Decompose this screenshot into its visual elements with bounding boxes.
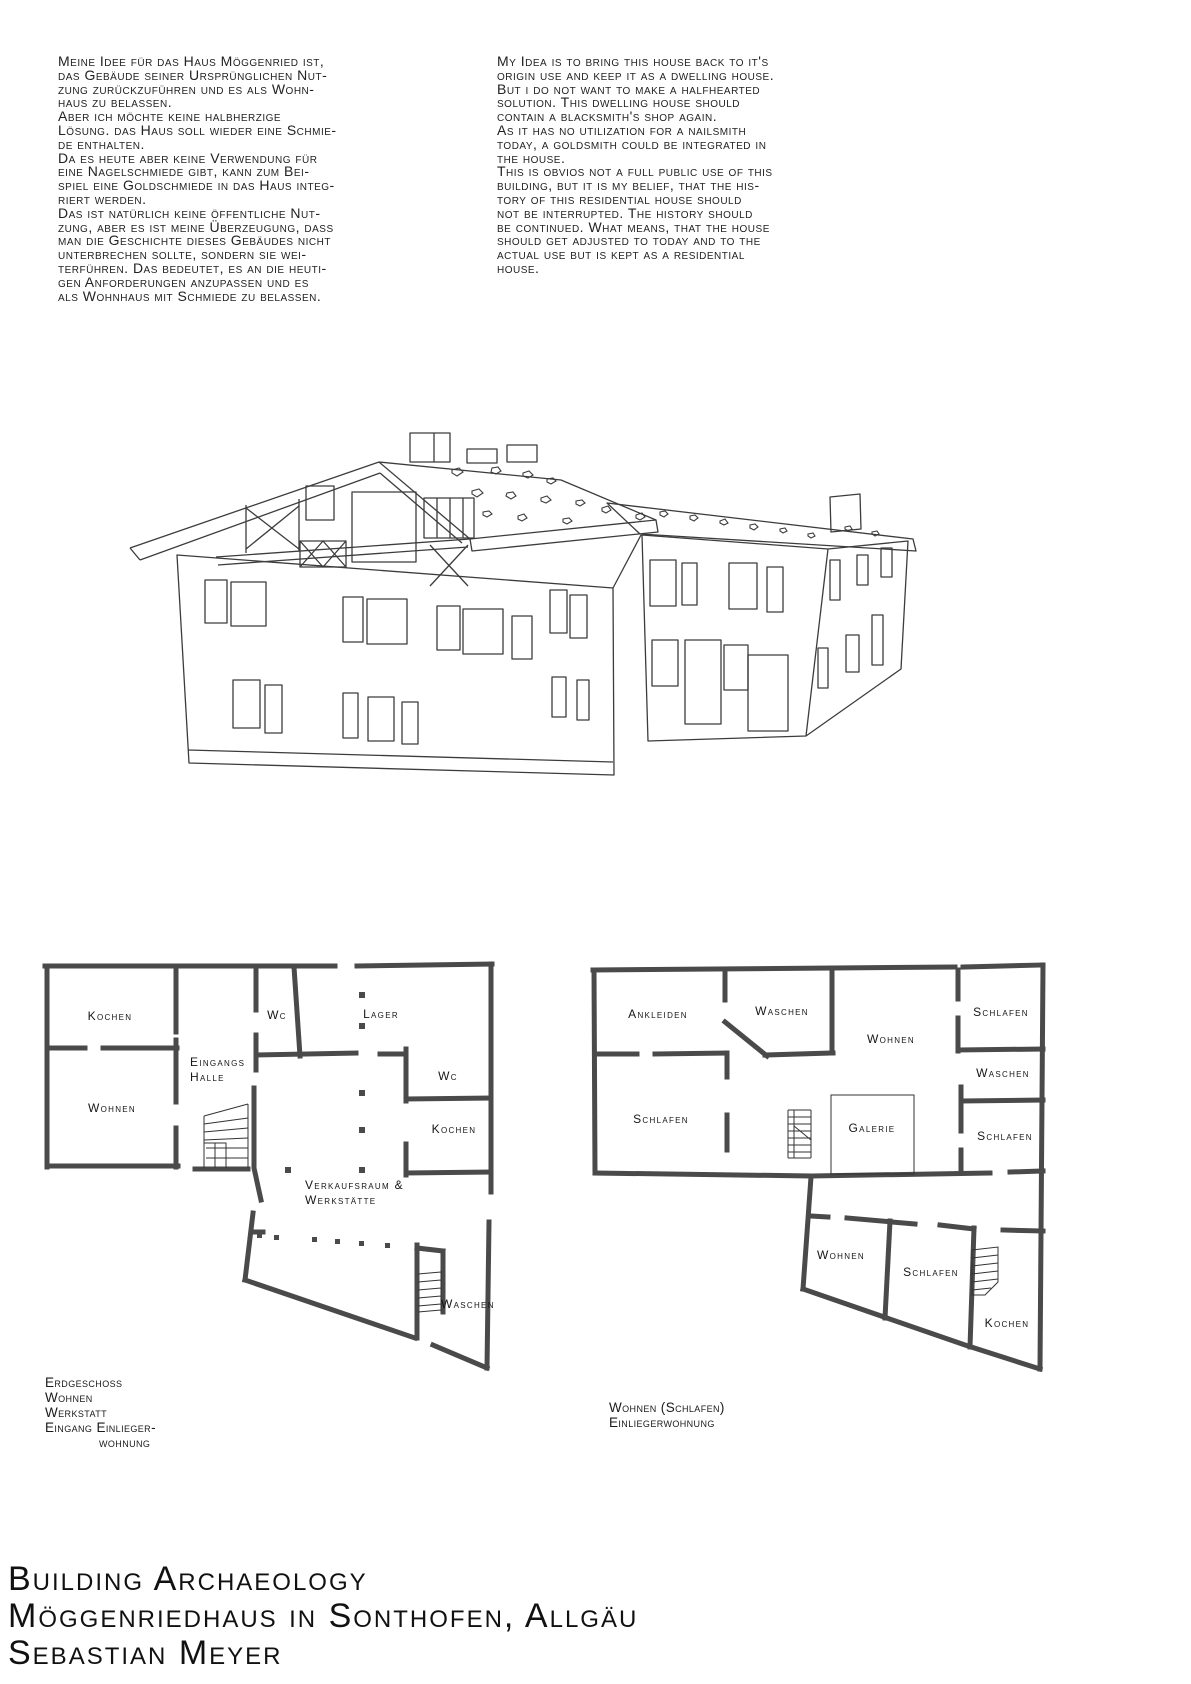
caption-left-plan: Erdgeschoss Wohnen Werkstatt Eingang Ein… (45, 1375, 156, 1450)
caption-line: wohnung (45, 1435, 156, 1450)
room-label-wohnen-upper: Wohnen (867, 1032, 915, 1046)
caption-right-plan: Wohnen (Schlafen) Einliegerwohnung (609, 1400, 725, 1430)
room-label-wohnen: Wohnen (88, 1101, 136, 1115)
room-label-waschen-right: Waschen (976, 1066, 1030, 1080)
room-label-kochen-right: Kochen (432, 1122, 477, 1136)
room-label-ankleiden: Ankleiden (628, 1007, 688, 1021)
floorplan-left-columns (257, 992, 390, 1248)
room-label-waschen-bottom: Waschen (441, 1297, 495, 1311)
room-label-wc-right: Wc (438, 1069, 458, 1083)
room-label-lager: Lager (363, 1007, 399, 1021)
room-label-halle: Halle (190, 1070, 225, 1084)
caption-line: Wohnen (45, 1390, 156, 1405)
caption-line: Wohnen (Schlafen) (609, 1400, 725, 1415)
caption-line: Einliegerwohnung (609, 1415, 725, 1430)
room-label-schlafen-left: Schlafen (633, 1112, 689, 1126)
room-label-verkaufsraum: Verkaufsraum & (305, 1178, 404, 1192)
floorplan-right-walls (593, 965, 1043, 1369)
room-label-eingangs: Eingangs (190, 1055, 245, 1069)
caption-line: Eingang Einlieger- (45, 1420, 156, 1435)
room-label-kochen-ext: Kochen (985, 1316, 1030, 1330)
caption-line: Erdgeschoss (45, 1375, 156, 1390)
footer-author: Sebastian Meyer (8, 1634, 283, 1673)
floorplan-left-stairs (204, 1104, 441, 1312)
room-label-schlafen-topright: Schlafen (973, 1005, 1029, 1019)
room-label-werkstaette: Werkstätte (305, 1193, 376, 1207)
room-label-wc: Wc (267, 1008, 287, 1022)
room-label-kochen: Kochen (88, 1009, 133, 1023)
house-3d-drawing (130, 433, 916, 775)
room-label-waschen-top: Waschen (755, 1004, 809, 1018)
presentation-board: Meine Idee für das Haus Möggenried ist,d… (0, 0, 1191, 1684)
room-label-galerie: Galerie (849, 1121, 896, 1135)
footer-title: Building Archaeology (8, 1560, 368, 1599)
footer-subtitle: Möggenriedhaus in Sonthofen, Allgäu (8, 1597, 638, 1636)
floorplan-left-walls (45, 964, 492, 1368)
house-illustration (0, 0, 1191, 1684)
caption-line: Werkstatt (45, 1405, 156, 1420)
room-label-schlafen-ext: Schlafen (903, 1265, 959, 1279)
room-label-wohnen-ext: Wohnen (817, 1248, 865, 1262)
room-label-schlafen-right: Schlafen (977, 1129, 1033, 1143)
